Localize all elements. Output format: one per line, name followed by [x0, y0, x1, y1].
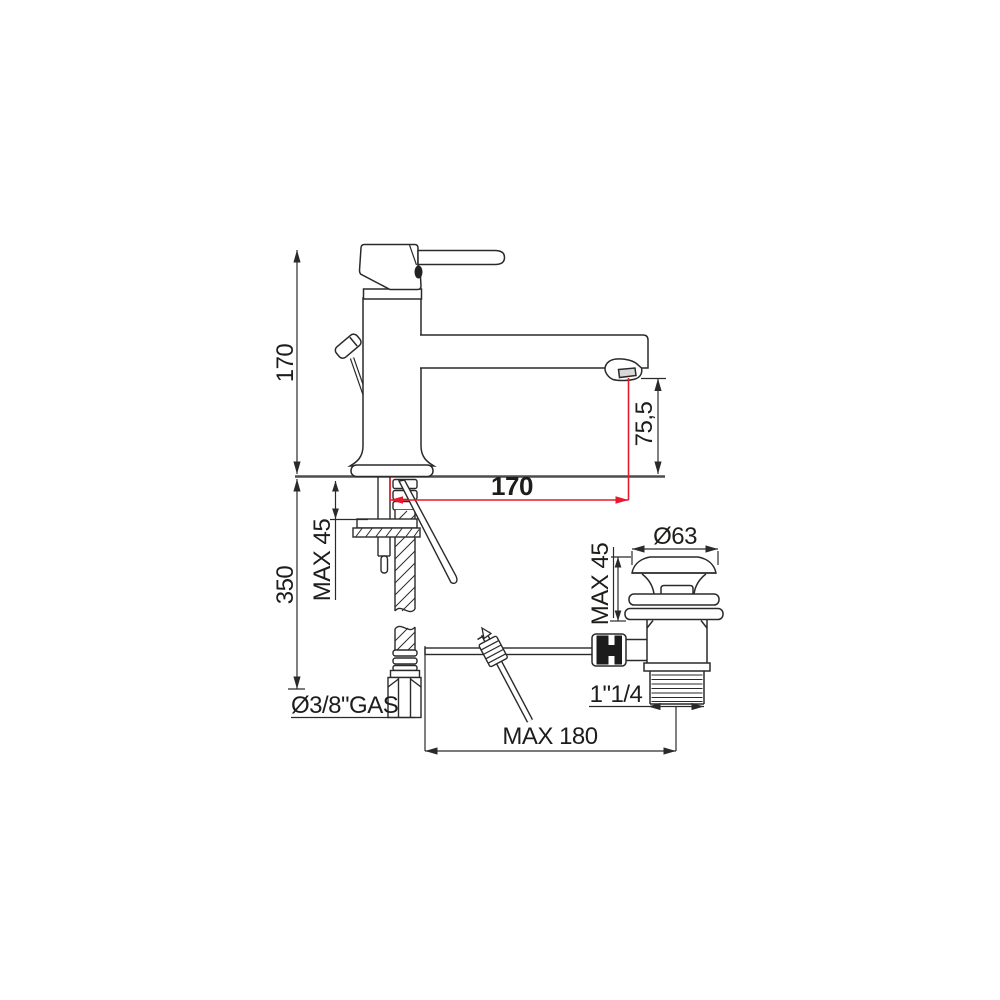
waste-thread-size-label: 1"1/4 [590, 681, 643, 708]
dimensions-black [288, 250, 718, 755]
handle-indicator-dot [415, 266, 423, 279]
technical-drawing-page: 170 350 MAX 45 75,5 170 Ø63 MAX 45 1"1/4… [0, 0, 1000, 1000]
linkage-max-length-label: MAX 180 [502, 723, 597, 750]
spout-reach-label: 170 [491, 471, 533, 501]
mounting-plate [353, 519, 420, 537]
spout-outlet-height-label: 75,5 [631, 401, 658, 446]
waste-flange-diameter-label: Ø63 [653, 523, 697, 550]
rod-tip [482, 628, 491, 639]
waste-tailpiece [650, 671, 704, 704]
waste-body-lip [644, 663, 710, 671]
ball-joint-nut [592, 634, 647, 666]
plug-tab [661, 586, 693, 595]
faucet-body [350, 298, 434, 466]
supply-connection-label: Ø3/8"GAS [291, 692, 398, 719]
linkage-rod-horizontal [425, 648, 593, 655]
cartridge-collar [364, 289, 422, 299]
total-height-label: 170 [272, 344, 299, 383]
faucet-assembly [333, 245, 648, 477]
plug-plate-upper [629, 594, 719, 605]
waste-flange-cap [632, 557, 716, 573]
waste-counter-max-label: MAX 45 [587, 543, 614, 626]
counter-max-left-label: MAX 45 [309, 519, 336, 602]
plug-plate-lower [625, 609, 723, 620]
waste-body [647, 620, 707, 664]
handle-lever [418, 251, 505, 265]
faucet-base-plate [351, 465, 433, 477]
under-counter-depth-label: 350 [272, 566, 299, 605]
technical-drawing-canvas: 170 350 MAX 45 75,5 170 Ø63 MAX 45 1"1/4… [0, 0, 1000, 1000]
linkage-clamp [479, 636, 508, 667]
dimension-labels: 170 350 MAX 45 75,5 170 Ø63 MAX 45 1"1/4… [272, 344, 697, 750]
